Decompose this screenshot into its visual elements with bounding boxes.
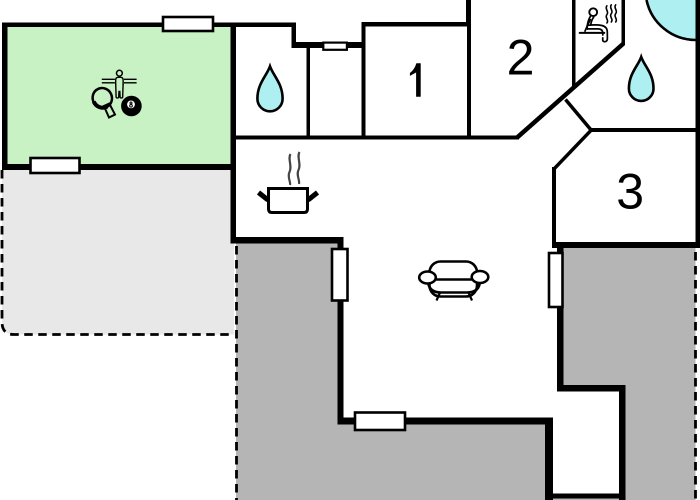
svg-text:2: 2 [507,29,535,85]
svg-text:3: 3 [616,164,644,220]
